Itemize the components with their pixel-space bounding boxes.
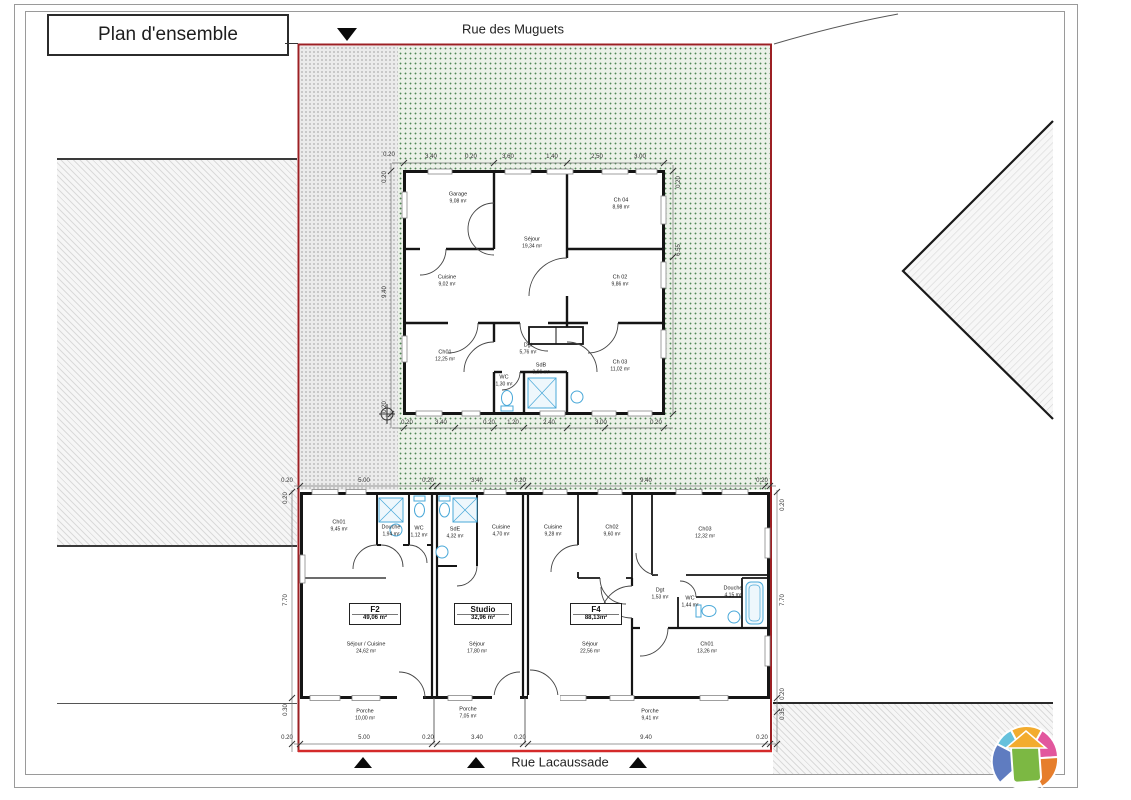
room-label: Séjour / Cuisine 24,62 m² [347, 641, 386, 654]
page-title: Plan d'ensemble [98, 24, 238, 46]
room-label: SdE 4,32 m² [447, 526, 464, 539]
dim-label: 3.00 [595, 420, 607, 426]
room-label: Ch02 9,60 m² [604, 524, 621, 537]
site-plan-page: Plan d'ensemble Rue des Muguets Rue Laca… [0, 0, 1131, 800]
dim-label: 0.20 [483, 420, 495, 426]
dim-label: 0.20 [283, 492, 289, 504]
room-label: Cuisine 9,02 m² [438, 274, 456, 287]
dim-label: 2.40 [543, 420, 555, 426]
dim-label: 0.20 [756, 735, 768, 741]
porch-label: Porche 9,41 m² [641, 708, 658, 721]
room-label: Ch01 13,26 m² [697, 641, 717, 654]
room-label: Ch 04 8,98 m² [613, 197, 630, 210]
room-label: Ch01 12,25 m² [435, 349, 455, 362]
dim-label: 0.20 [281, 735, 293, 741]
room-label: Garage 9,08 m² [449, 191, 467, 204]
dim-label: 0.20 [756, 478, 768, 484]
dim-label: 3.40 [471, 735, 483, 741]
unit-label-studio: Studio 32,96 m² [454, 603, 512, 625]
room-label: Douche 4,15 m² [724, 585, 743, 598]
dim-label: 0.20 [780, 499, 786, 511]
unit-label-f4: F4 88,13m² [570, 603, 622, 625]
dim-label: 9.40 [640, 735, 652, 741]
gravel-area [300, 46, 398, 490]
dim-label: 0.20 [383, 152, 395, 158]
neighbor-strip-bottom-right [773, 702, 1053, 774]
dim-label: 3.40 [425, 154, 437, 160]
room-label: WC 1,30 m² [496, 374, 513, 387]
dim-label: 0.20 [676, 176, 682, 188]
dim-label: 0.20 [780, 688, 786, 700]
dim-label: 9.40 [382, 286, 388, 298]
room-label: SdB 3,96 m² [533, 362, 550, 375]
dim-label: 0.20 [514, 735, 526, 741]
dim-label: 6.55 [676, 244, 682, 256]
room-label: Séjour 19,34 m² [522, 236, 542, 249]
dim-label: 0.35 [780, 708, 786, 720]
title-connector-line [285, 43, 298, 44]
room-label: Ch03 12,32 m² [695, 526, 715, 539]
room-label: Dgt 5,76 m² [520, 342, 537, 355]
street-label-top: Rue des Muguets [462, 22, 564, 37]
porch-label: Porche 10,00 m² [355, 708, 375, 721]
boundary-line-left-bottom [57, 703, 297, 704]
room-label: Ch 02 9,86 m² [612, 274, 629, 287]
room-label: Cuisine 4,70 m² [492, 524, 510, 537]
dim-label: 5.00 [358, 735, 370, 741]
room-label: Dgt 1,53 m² [652, 587, 669, 600]
unit-label-f2: F2 49,06 m² [349, 603, 401, 625]
dim-label: 7.70 [780, 594, 786, 606]
dim-label: 0.20 [382, 171, 388, 183]
dim-label: 3.40 [471, 478, 483, 484]
dim-label: 0.20 [382, 401, 388, 413]
dim-label: 9.40 [640, 478, 652, 484]
dim-label: 2.50 [591, 154, 603, 160]
dim-label: 0.20 [281, 478, 293, 484]
dim-label: 0.20 [465, 154, 477, 160]
dim-label: 3.60 [502, 154, 514, 160]
room-label: WC 1,12 m² [411, 525, 428, 538]
dim-label: 7.70 [283, 594, 289, 606]
room-label: Ch01 9,45 m² [331, 519, 348, 532]
room-label: Séjour 17,80 m² [467, 641, 487, 654]
neighbor-building-left [57, 158, 297, 547]
dim-label: 1.40 [546, 154, 558, 160]
dim-label: 1.20 [507, 420, 519, 426]
dim-label: 5.00 [358, 478, 370, 484]
dim-label: 0.20 [401, 420, 413, 426]
dim-label: 0.20 [650, 420, 662, 426]
dim-label: 0.20 [422, 735, 434, 741]
room-label: Ch 03 11,02 m² [610, 359, 629, 372]
room-label: Douche 1,94 m² [382, 524, 401, 537]
dim-label: 0.30 [283, 704, 289, 716]
room-label: Cuisine 9,28 m² [544, 524, 562, 537]
dim-label: 3.40 [435, 420, 447, 426]
garden-area [398, 46, 770, 490]
porch-label: Porche 7,05 m² [459, 706, 476, 719]
dim-label: 0.20 [422, 478, 434, 484]
street-label-bottom: Rue Lacaussade [511, 755, 609, 770]
room-label: Séjour 22,56 m² [580, 641, 600, 654]
dim-label: 3.00 [634, 154, 646, 160]
plan-title-box: Plan d'ensemble [47, 14, 289, 56]
dim-label: 0.20 [514, 478, 526, 484]
room-label: WC 1,44 m² [682, 595, 699, 608]
